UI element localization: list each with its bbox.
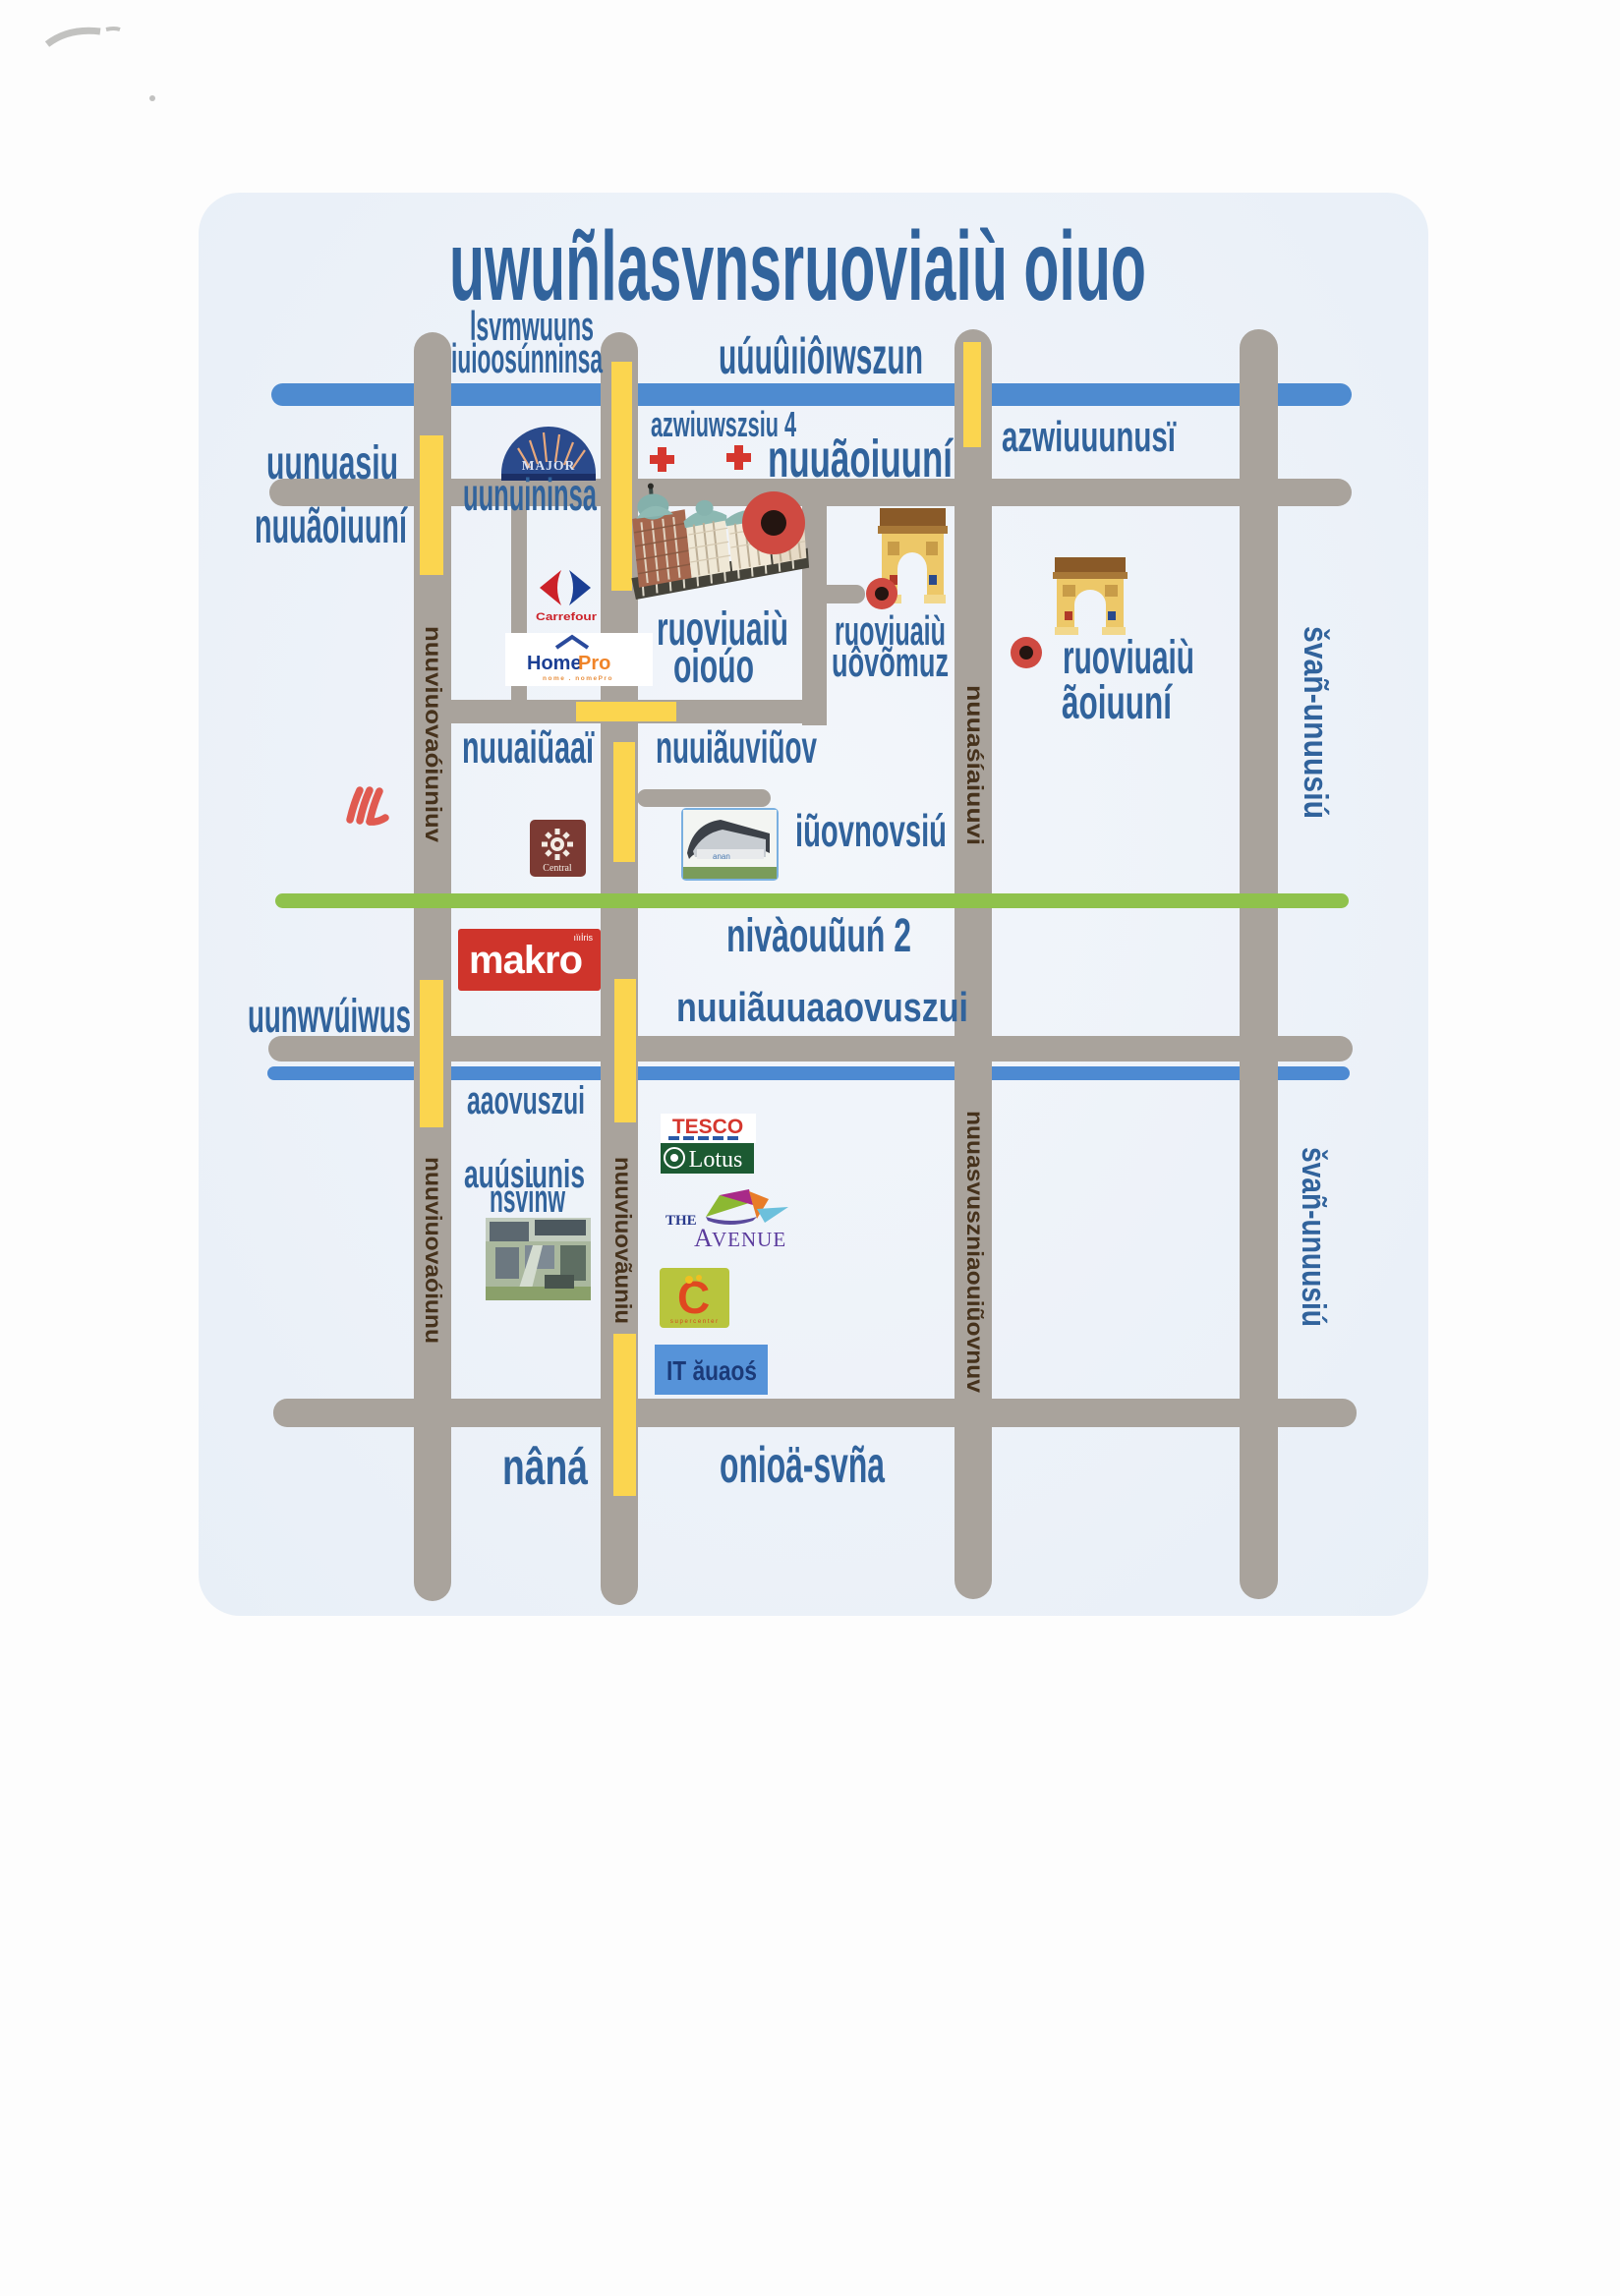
svg-text:onioä-svña: onioä-svña <box>720 1437 886 1494</box>
svg-text:uúuûıiôıwszun: uúuûıiôıwszun <box>719 328 923 385</box>
svg-text:nuuaśíaiuuvi: nuuaśíaiuuvi <box>962 685 988 845</box>
svg-text:nuuiãuviũov: nuuiãuviũov <box>656 721 817 773</box>
svg-text:nuuviuovaóiuniuv: nuuviuovaóiuniuv <box>421 626 446 842</box>
svg-text:oioúo: oioúo <box>673 641 754 693</box>
svg-text:nuuviuovaóiunu: nuuviuovaóiunu <box>421 1157 446 1344</box>
svg-text:nuuviuovãuniu: nuuviuovãuniu <box>610 1157 636 1324</box>
svg-text:iũovnovsiú: iũovnovsiú <box>795 805 947 856</box>
svg-text:švañ-unuusiú: švañ-unuusiú <box>1297 626 1334 819</box>
svg-text:uunwvúiwus: uunwvúiwus <box>248 991 411 1043</box>
svg-text:uunuininsa: uunuininsa <box>463 469 597 520</box>
svg-text:nivàouũuń 2: nivàouũuń 2 <box>726 910 911 962</box>
svg-text:nuuãoiuuní: nuuãoiuuní <box>768 430 954 488</box>
svg-text:uunuasiu: uunuasiu <box>266 437 398 489</box>
svg-text:nuuasvuszniaouiũovnuv: nuuasvuszniaouiũovnuv <box>962 1111 988 1393</box>
svg-text:nsvinw: nsvinw <box>490 1177 565 1221</box>
svg-text:azwiuuunusï: azwiuuunusï <box>1002 413 1177 461</box>
svg-text:iuioosúnninsa: iuioosúnninsa <box>451 335 603 381</box>
svg-text:aaovuszui: aaovuszui <box>467 1079 585 1122</box>
svg-text:nuuiãuuaaovuszui: nuuiãuuaaovuszui <box>676 984 968 1030</box>
svg-text:nuuaiũaaï: nuuaiũaaï <box>462 721 595 773</box>
svg-text:ãoiuuní: ãoiuuní <box>1062 677 1173 729</box>
svg-text:švañ-unuusiú: švañ-unuusiú <box>1295 1147 1332 1327</box>
svg-text:nâná: nâná <box>502 1439 589 1496</box>
svg-text:uôvõmuz: uôvõmuz <box>832 639 949 685</box>
svg-text:nuuãoiuuní: nuuãoiuuní <box>255 498 408 553</box>
